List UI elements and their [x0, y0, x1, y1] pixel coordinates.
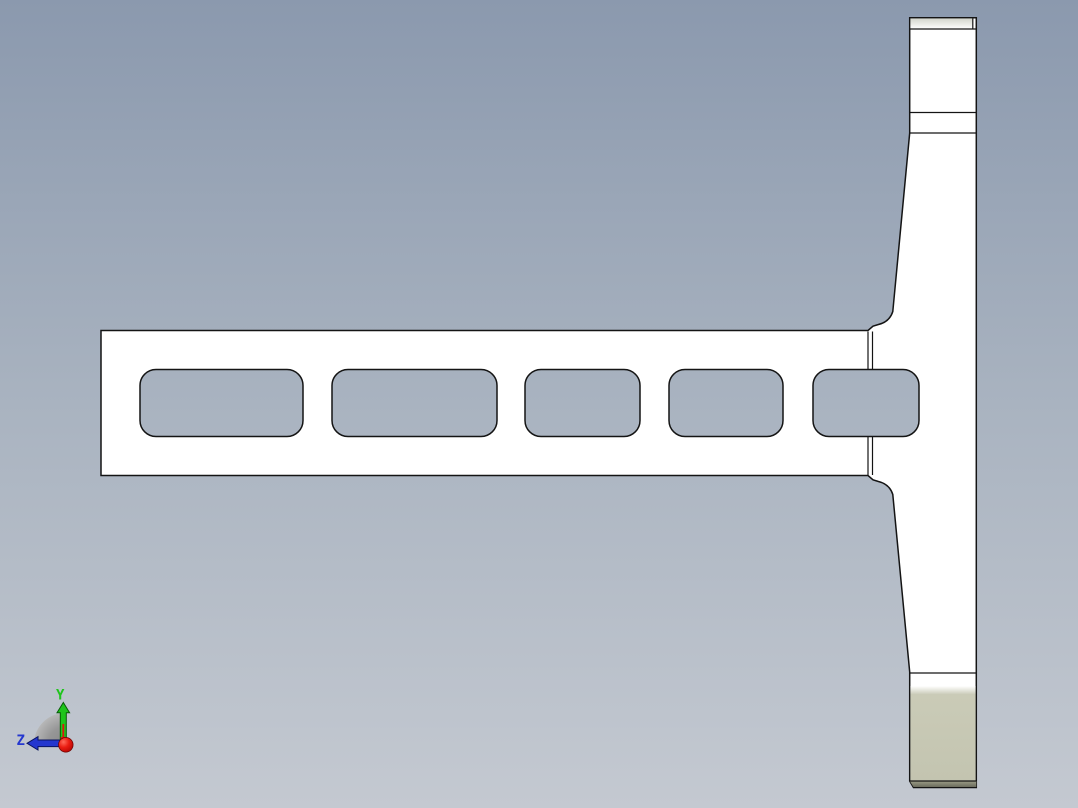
y-axis-label: Y: [56, 688, 65, 704]
flange-bottom-tan-face[interactable]: [910, 695, 975, 781]
flange-top-chamfer: [910, 18, 972, 29]
flange-bottom-shade-transition: [910, 686, 975, 695]
slot-hole-2[interactable]: [332, 370, 497, 437]
slot-hole-1[interactable]: [140, 370, 303, 437]
flange-bottom-dark-band: [910, 781, 977, 787]
slot-hole-4[interactable]: [669, 370, 783, 437]
origin-ball-icon: [59, 738, 74, 753]
cad-viewport[interactable]: Y Z: [0, 0, 1078, 808]
z-axis-label: Z: [17, 733, 25, 749]
slot-hole-3[interactable]: [525, 370, 640, 437]
slot-hole-5[interactable]: [813, 370, 919, 437]
